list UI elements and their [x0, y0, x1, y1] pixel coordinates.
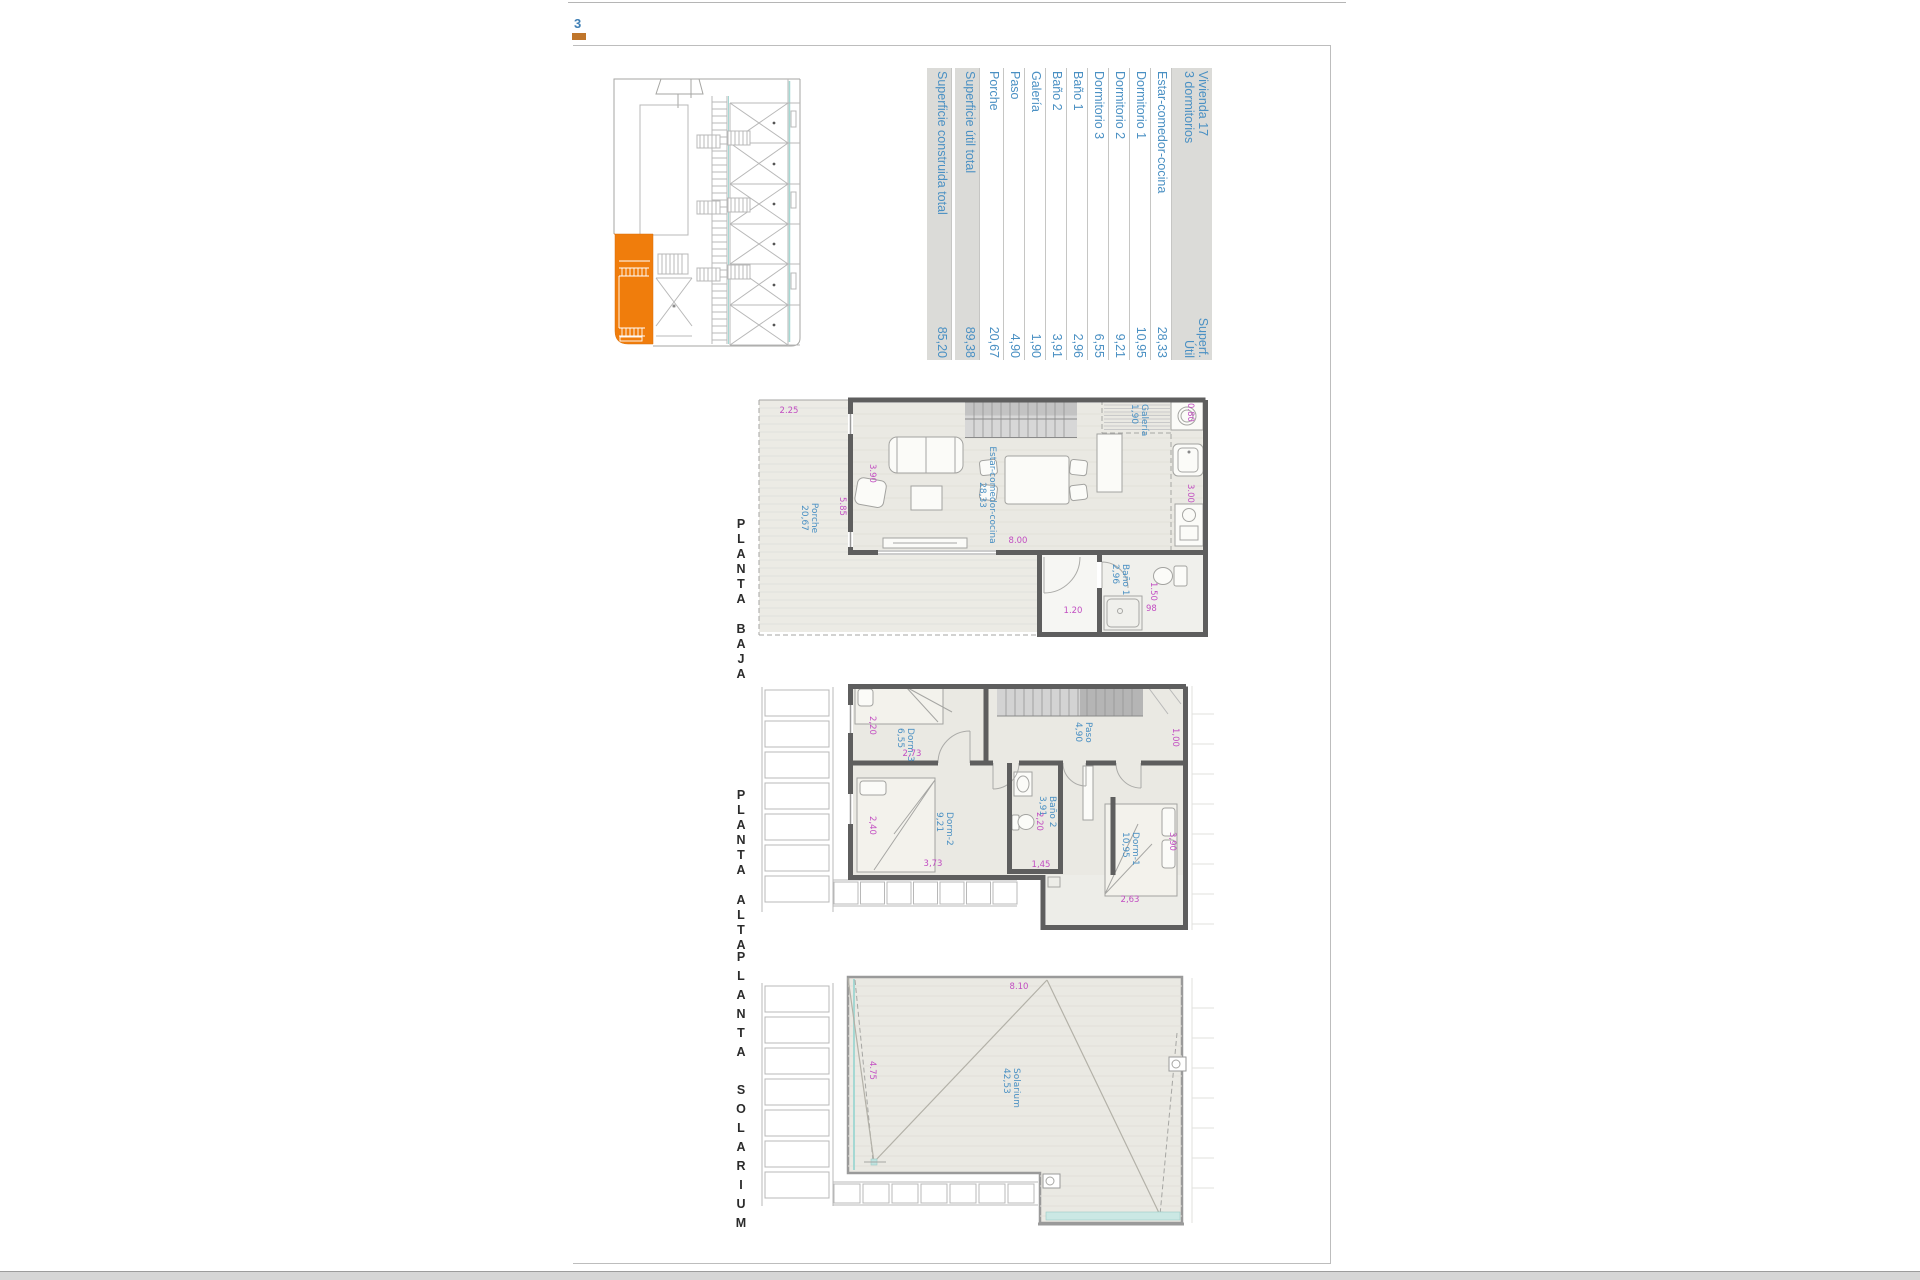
planta-baja-title: PLANTA BAJA	[734, 517, 748, 647]
dim: 0.80	[1185, 403, 1195, 422]
site-stair-hatches	[697, 131, 750, 281]
wardrobe	[1083, 766, 1093, 820]
table-row: Baño 2 3,91	[1046, 68, 1067, 360]
dim: 1.50	[1148, 582, 1158, 601]
table-row: Dormitorio 1 10,95	[1130, 68, 1151, 360]
dim: 2,63	[1121, 895, 1140, 905]
dim: 3,90	[1167, 832, 1177, 851]
svg-text:Dorm-1: Dorm-1	[1130, 832, 1140, 866]
dim: 3,73	[924, 859, 943, 869]
svg-text:10,95: 10,95	[1120, 832, 1130, 858]
svg-text:Baño 2: Baño 2	[1047, 796, 1057, 828]
pergola-slats	[762, 687, 833, 912]
dim: 3.00	[1185, 484, 1195, 503]
svg-text:Baño 1: Baño 1	[1120, 564, 1130, 596]
planta-alta-drawing: Dorm-3 6,55 2,20 2,73 Paso 4,90 1,00 2,4…	[756, 684, 1216, 946]
table-header-row: Vivienda 17 3 dormitorios Superf. Útil	[1172, 68, 1212, 360]
teal-edge-strip	[1046, 1212, 1180, 1220]
svg-text:Paso: Paso	[1083, 722, 1093, 743]
area-summary-table: Vivienda 17 3 dormitorios Superf. Útil E…	[925, 68, 1212, 360]
dwelling-subtitle: 3 dormitorios	[1181, 71, 1195, 305]
page-number-marker	[572, 33, 586, 40]
room-label-paso: Paso 4,90	[1073, 722, 1093, 743]
staircase	[965, 398, 1077, 438]
dim: 2,20	[867, 716, 877, 735]
svg-text:Dorm-2: Dorm-2	[944, 812, 954, 846]
room-label-porche: Porche 20,67	[799, 503, 819, 534]
table-total-util: Superficie útil total 89,38	[955, 68, 980, 360]
svg-text:4,90: 4,90	[1073, 722, 1083, 742]
railing	[833, 1182, 1038, 1205]
dim: 2,73	[903, 749, 922, 759]
planta-baja-drawing: 2.25 3.90 5.85 Porche 20,67 Estar-comedo…	[756, 392, 1211, 644]
dim: 1,00	[1170, 728, 1180, 747]
planta-solarium-title: PLANTA SOLARIUM	[734, 950, 748, 1218]
dwelling-title: Vivienda 17	[1196, 71, 1210, 305]
dim: 2,20	[1034, 812, 1044, 831]
svg-text:1,90: 1,90	[1129, 404, 1139, 424]
planta-solarium-drawing: 8.10 Solarium 42,53 4.75	[756, 958, 1218, 1248]
dim: 1.20	[1064, 606, 1083, 616]
site-unit-adjacent	[656, 254, 692, 336]
table-row: Galería 1,90	[1025, 68, 1046, 360]
top-divider-line	[568, 2, 1346, 3]
page-number: 3	[574, 16, 581, 31]
svg-text:Galería: Galería	[1139, 404, 1149, 436]
kitchen-island	[1097, 434, 1122, 492]
svg-text:Porche: Porche	[809, 503, 819, 534]
bottom-bar	[0, 1271, 1920, 1280]
dim: 3.90	[867, 464, 877, 483]
table-row: Dormitorio 2 9,21	[1109, 68, 1130, 360]
svg-text:Estar-comedor-cocina: Estar-comedor-cocina	[987, 446, 997, 543]
svg-text:42,53: 42,53	[1001, 1068, 1011, 1094]
unit-col-header-1: Superf.	[1196, 305, 1210, 358]
site-walkway	[712, 96, 729, 344]
svg-text:6,55: 6,55	[895, 728, 905, 748]
svg-text:9,21: 9,21	[934, 812, 944, 832]
dim: 4.75	[867, 1061, 877, 1080]
svg-text:20,67: 20,67	[799, 505, 809, 531]
neighbor-outline	[1192, 978, 1214, 1223]
kitchen-appliances	[1171, 402, 1203, 550]
dorm1-bed	[1105, 804, 1177, 896]
pergola-slats	[762, 983, 833, 1206]
plan-sheet-page: 3	[0, 0, 1920, 1280]
table-row: Baño 1 2,96	[1067, 68, 1088, 360]
neighbor-outline	[1192, 686, 1214, 930]
table-row: Dormitorio 3 6,55	[1088, 68, 1109, 360]
dim: 2,40	[867, 816, 877, 835]
unit-col-header-2: Útil	[1181, 305, 1195, 358]
table-row: Paso 4,90	[1004, 68, 1025, 360]
svg-text:2,96: 2,96	[1110, 564, 1120, 584]
dim: 8.00	[1009, 536, 1028, 546]
site-plan	[612, 78, 814, 354]
dim: 8.10	[1010, 982, 1029, 992]
svg-text:28,33: 28,33	[977, 482, 987, 508]
table-total-construida: Superficie construida total 85,20	[927, 68, 952, 360]
dim: 1,45	[1032, 860, 1051, 870]
site-highlight-unit	[614, 234, 653, 344]
table-row: Estar-comedor-cocina 28,33	[1151, 68, 1172, 360]
table-row: Porche 20,67	[983, 68, 1004, 360]
balcony-railing	[833, 880, 1017, 906]
dim: 98	[1146, 604, 1157, 614]
planta-alta-title: PLANTA ALTA	[734, 788, 748, 920]
dim: 5.85	[837, 497, 847, 516]
svg-text:Solarium: Solarium	[1011, 1068, 1021, 1108]
dim: 2.25	[780, 406, 799, 416]
